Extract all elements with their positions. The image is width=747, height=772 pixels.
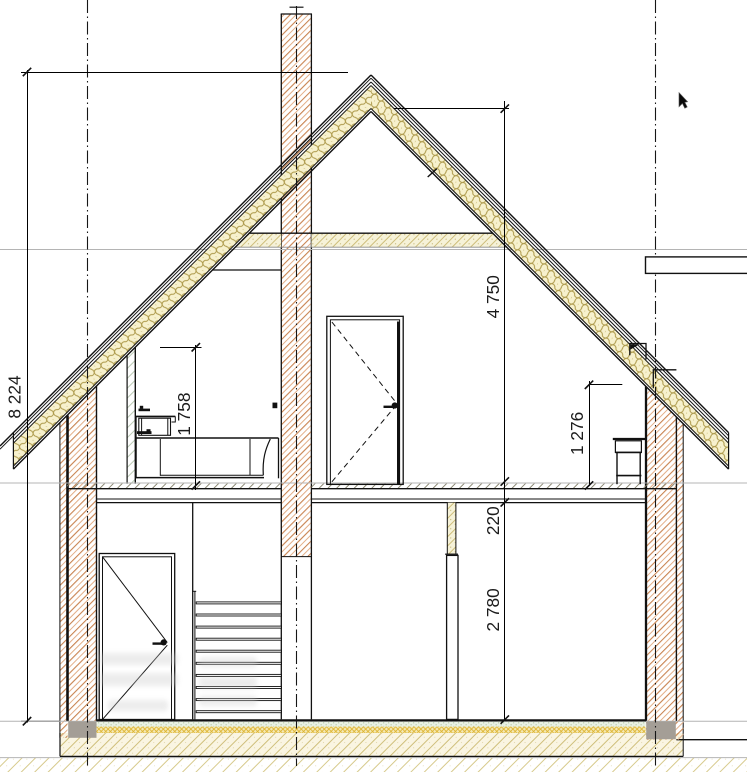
svg-text:2 780: 2 780 — [483, 588, 503, 631]
svg-text:8 224: 8 224 — [5, 375, 25, 419]
svg-text:220: 220 — [483, 506, 503, 535]
svg-text:1 276: 1 276 — [567, 412, 587, 455]
svg-text:1 758: 1 758 — [174, 392, 194, 435]
svg-text:4 750: 4 750 — [483, 275, 503, 318]
